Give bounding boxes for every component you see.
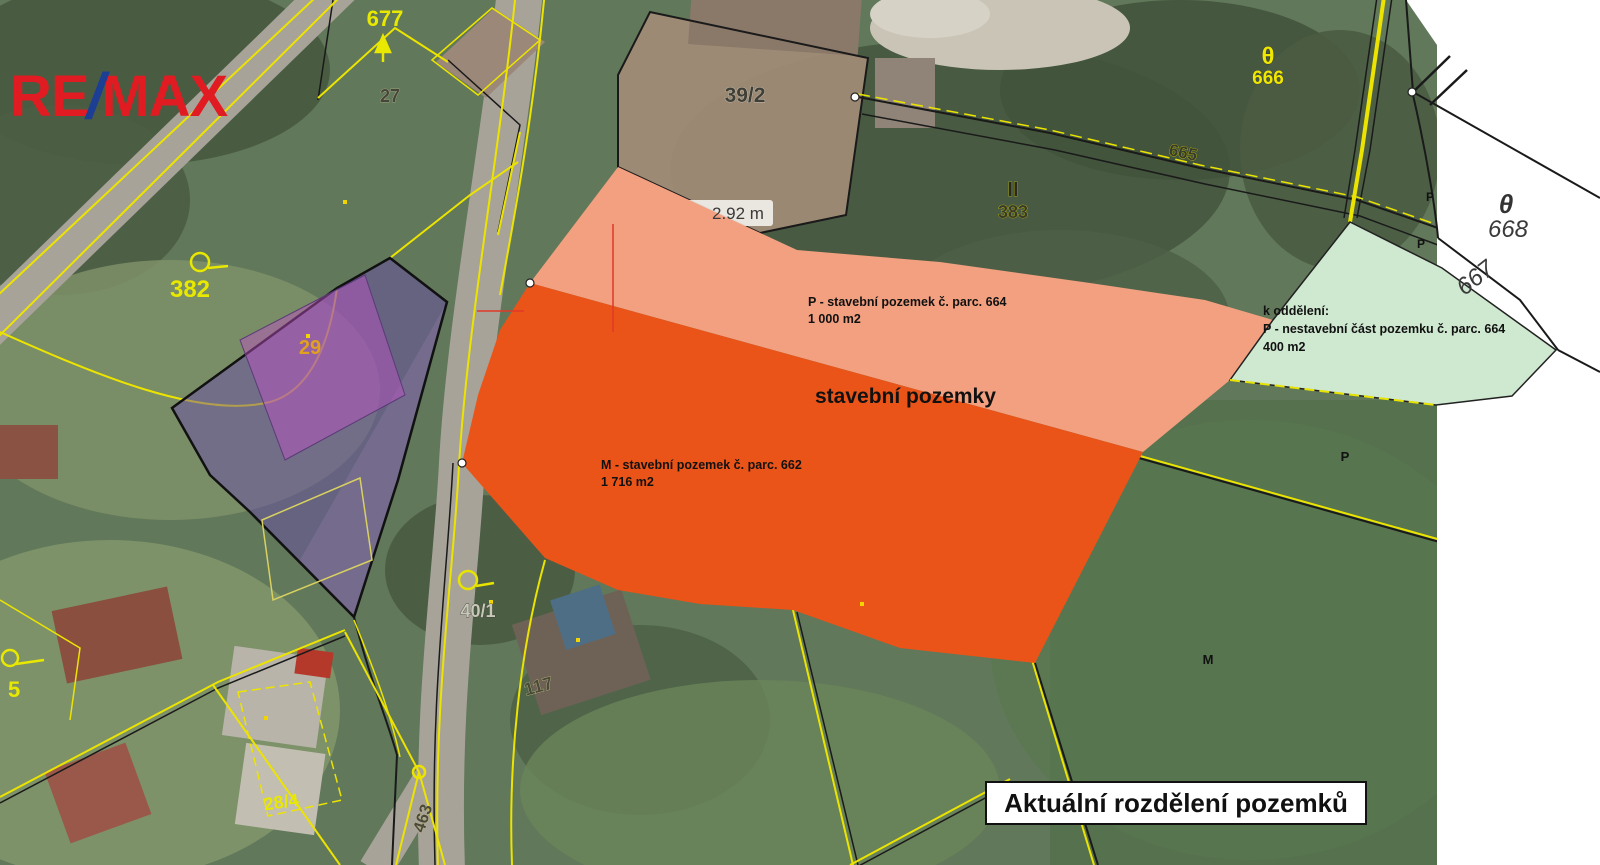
parcel-number-382: 382 [170, 276, 210, 303]
label-p-3: P [1341, 449, 1350, 464]
parcel-number-40-1: 40/1 [460, 601, 495, 621]
symbol-ii: II [1007, 179, 1018, 201]
parcel-number-27: 27 [380, 86, 400, 106]
parcel-green-label-line1: k oddělení: [1263, 304, 1329, 318]
cadastral-map: 677 27 382 29 39/2 II 383 θ 666 665 5 28… [0, 0, 1600, 865]
label-p-1: P [1426, 190, 1434, 204]
parcel-number-39-2: 39/2 [725, 84, 766, 107]
roof-left3 [0, 425, 58, 479]
parcel-p-label-line2: 1 000 m2 [808, 312, 861, 326]
heading-stavebni-pozemky: stavební pozemky [815, 385, 996, 408]
symbol-theta-668-icon: θ [1499, 189, 1514, 219]
parcel-number-5: 5 [8, 677, 20, 702]
cadastral-map-screenshot: 677 27 382 29 39/2 II 383 θ 666 665 5 28… [0, 0, 1600, 865]
remax-logo-slash-icon: / [87, 64, 104, 128]
symbol-theta-666-icon: θ [1262, 43, 1275, 70]
parcel-m-label-line1: M - stavební pozemek č. parc. 662 [601, 458, 802, 472]
parcel-green-label-line3: 400 m2 [1263, 340, 1305, 354]
label-p-2: P [1417, 237, 1425, 251]
remax-logo-max: MAX [101, 64, 227, 129]
remax-logo-re: RE [10, 64, 89, 129]
parcel-number-383: 383 [998, 202, 1028, 222]
map-title-text: Aktuální rozdělení pozemků [1004, 788, 1348, 819]
remax-logo: RE/MAX [10, 62, 227, 126]
parcel-p-label-line1: P - stavební pozemek č. parc. 664 [808, 295, 1007, 309]
parcel-number-29: 29 [299, 337, 321, 359]
parcel-number-677: 677 [367, 6, 404, 31]
parcel-number-666: 666 [1252, 68, 1284, 89]
parcel-m-label-line2: 1 716 m2 [601, 475, 654, 489]
red-truck [294, 648, 333, 679]
map-title-box: Aktuální rozdělení pozemků [985, 781, 1367, 825]
measurement-label: 2.92 m [712, 204, 764, 223]
parcel-number-668: 668 [1488, 216, 1529, 243]
parcel-green-label-line2: P - nestavební část pozemku č. parc. 664 [1263, 322, 1505, 336]
roof-284b [235, 743, 326, 835]
label-m: M [1203, 652, 1214, 667]
